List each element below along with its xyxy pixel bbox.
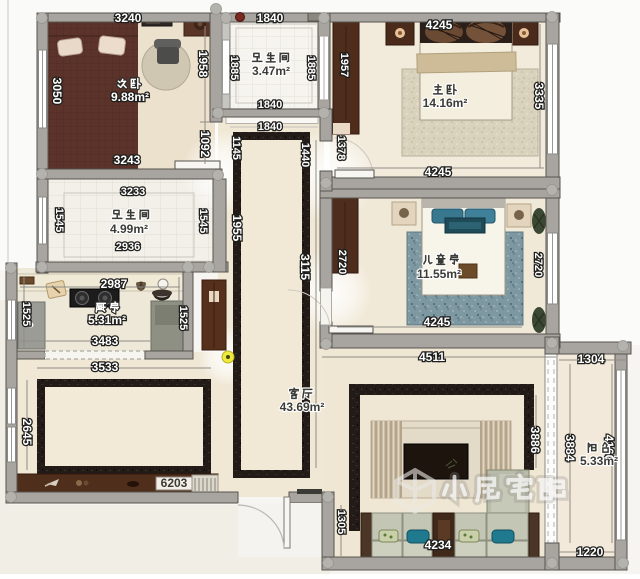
svg-text:4234: 4234 [425,538,452,552]
svg-text:3115: 3115 [298,254,312,280]
svg-text:1092: 1092 [198,131,212,158]
svg-text:1840: 1840 [258,121,282,133]
svg-text:3886: 3886 [528,427,542,454]
svg-text:4245: 4245 [424,315,451,329]
svg-text:43.69m²: 43.69m² [280,400,325,414]
svg-text:3884: 3884 [563,435,577,462]
svg-text:9.88m²: 9.88m² [111,90,149,104]
svg-text:2645: 2645 [20,419,34,446]
svg-text:1145: 1145 [230,136,242,160]
svg-text:1304: 1304 [578,352,605,366]
svg-text:1545: 1545 [53,208,65,232]
svg-text:1955: 1955 [230,215,244,242]
svg-text:14.16m²: 14.16m² [423,96,468,110]
svg-text:3335: 3335 [532,83,546,110]
svg-text:2720: 2720 [336,250,348,274]
svg-text:3050: 3050 [50,78,64,105]
svg-text:1840: 1840 [258,99,282,111]
svg-text:2987: 2987 [101,277,128,291]
svg-text:5.33m²: 5.33m² [580,454,618,468]
svg-text:1378: 1378 [335,136,347,160]
svg-text:3243: 3243 [114,153,141,167]
svg-text:11.55m²: 11.55m² [417,267,461,281]
svg-text:5.31m²: 5.31m² [88,313,126,327]
svg-text:1957: 1957 [338,53,350,77]
svg-text:4511: 4511 [419,350,445,364]
svg-text:3483: 3483 [92,334,119,348]
svg-text:4245: 4245 [426,18,453,32]
svg-text:4.99m²: 4.99m² [110,222,148,236]
svg-text:1885: 1885 [228,56,240,80]
svg-text:1440: 1440 [299,143,311,167]
svg-text:2720: 2720 [532,253,544,277]
svg-text:1525: 1525 [177,306,189,330]
svg-text:3240: 3240 [115,11,142,25]
svg-text:6203: 6203 [161,476,188,490]
svg-text:4245: 4245 [425,165,452,179]
svg-text:3.47m²: 3.47m² [252,64,290,78]
svg-text:1840: 1840 [257,11,284,25]
svg-text:1545: 1545 [197,209,209,233]
svg-text:1305: 1305 [335,510,347,534]
svg-text:3533: 3533 [92,360,119,374]
svg-text:1958: 1958 [196,51,210,78]
svg-text:3233: 3233 [121,186,145,198]
svg-text:1885: 1885 [305,56,317,80]
svg-text:1525: 1525 [20,302,32,326]
svg-text:2936: 2936 [116,241,140,253]
svg-text:1220: 1220 [577,545,604,559]
